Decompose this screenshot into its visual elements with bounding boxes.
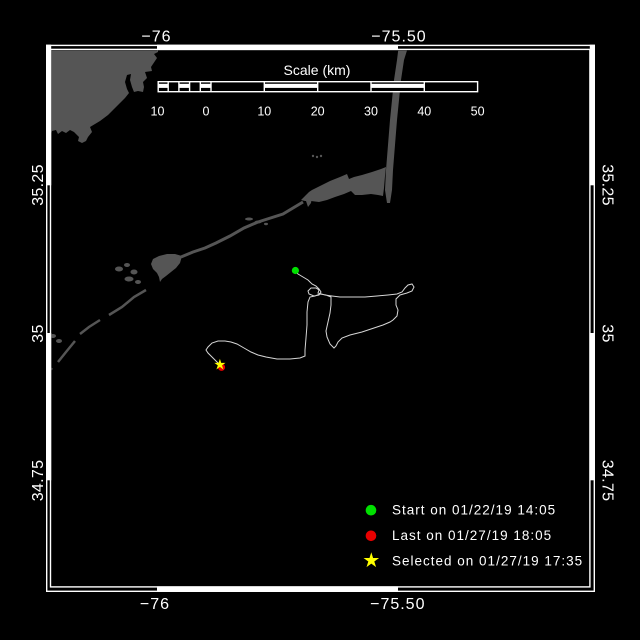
svg-text:−76: −76 [141, 29, 171, 46]
svg-text:35: 35 [30, 324, 47, 342]
svg-text:40: 40 [417, 105, 431, 119]
svg-text:34.75: 34.75 [599, 460, 616, 502]
svg-text:0: 0 [203, 105, 210, 119]
svg-text:10: 10 [257, 105, 271, 119]
svg-text:35.25: 35.25 [599, 164, 616, 206]
svg-text:35: 35 [599, 324, 616, 342]
svg-text:−76: −76 [140, 596, 170, 613]
svg-text:Scale (km): Scale (km) [284, 62, 351, 78]
svg-text:−75.50: −75.50 [371, 29, 426, 46]
svg-text:−75.50: −75.50 [370, 596, 425, 613]
svg-text:Last on 01/27/19 18:05: Last on 01/27/19 18:05 [392, 528, 552, 543]
svg-text:Start on 01/22/19 14:05: Start on 01/22/19 14:05 [392, 503, 556, 518]
svg-text:Selected on 01/27/19 17:35: Selected on 01/27/19 17:35 [392, 554, 583, 569]
svg-text:35.25: 35.25 [30, 164, 47, 206]
svg-text:30: 30 [364, 105, 378, 119]
svg-text:50: 50 [471, 105, 485, 119]
svg-text:20: 20 [311, 105, 325, 119]
svg-text:10: 10 [151, 105, 165, 119]
svg-text:34.75: 34.75 [30, 460, 47, 502]
